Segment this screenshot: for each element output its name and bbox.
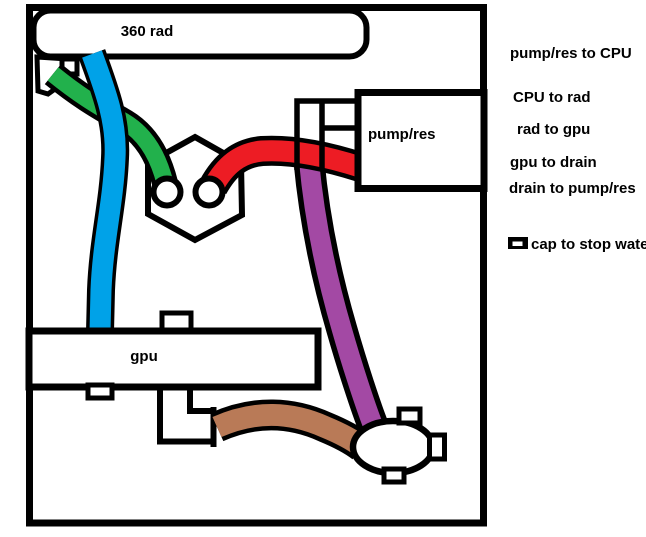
gpu-label: gpu: [130, 348, 158, 365]
drawing-canvas: pump/res 360 rad gpu: [0, 0, 646, 537]
radiator-box: [34, 11, 367, 57]
gpu-box: [29, 331, 318, 387]
cpu-port-left: [154, 179, 181, 206]
legend-rad-to-gpu: rad to gpu: [517, 121, 590, 138]
watercooling-diagram: pump/res 360 rad gpu: [0, 0, 646, 537]
gpu-top-cap: [162, 313, 191, 330]
cpu-port-right: [196, 179, 223, 206]
drain-bottom-cap: [384, 469, 404, 482]
drain-valve: [353, 421, 433, 473]
legend-drain-to-pump: drain to pump/res: [509, 180, 636, 197]
drain-right-cap: [430, 435, 445, 459]
drain-top-cap: [399, 409, 420, 423]
legend-cap-note: cap to stop water: [531, 236, 646, 253]
cap-icon: [508, 237, 528, 249]
legend-pump-to-cpu: pump/res to CPU: [510, 45, 632, 62]
legend-cpu-to-rad: CPU to rad: [513, 89, 591, 106]
radiator-label: 360 rad: [121, 23, 174, 40]
legend: pump/res to CPU CPU to rad rad to gpu gp…: [508, 45, 646, 253]
legend-gpu-to-drain: gpu to drain: [510, 154, 597, 171]
pump-res-label: pump/res: [368, 126, 436, 143]
cap-icon-slot: [513, 242, 523, 247]
gpu-bottom-cap: [88, 385, 112, 398]
